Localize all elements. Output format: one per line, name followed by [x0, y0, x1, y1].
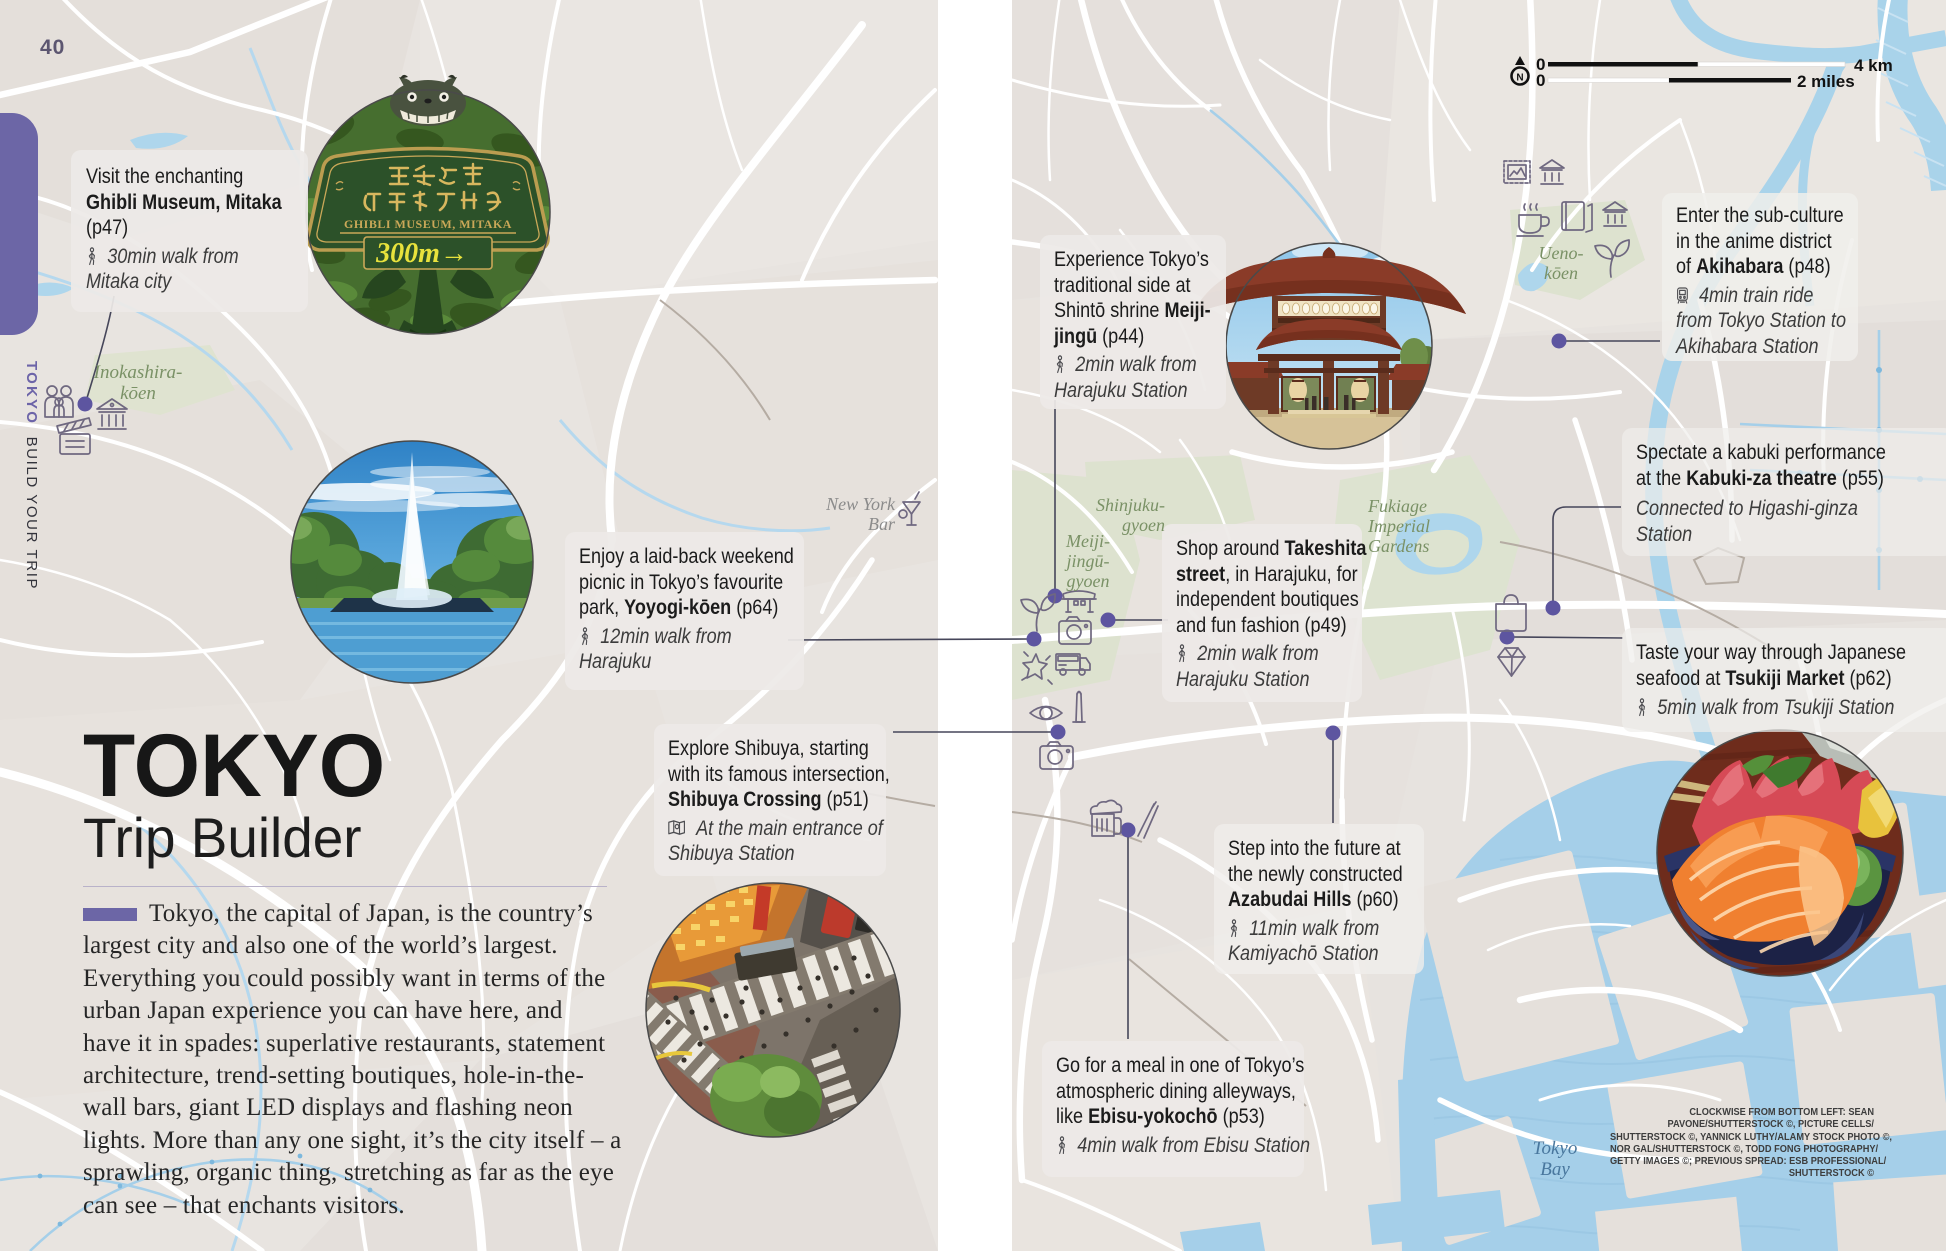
svg-text:300m→: 300m→	[375, 238, 468, 269]
svg-text:N: N	[1516, 73, 1523, 84]
svg-text:0: 0	[1536, 71, 1545, 90]
svg-text:2 miles: 2 miles	[1797, 72, 1855, 91]
svg-text:GHIBLI MUSEUM, MITAKA: GHIBLI MUSEUM, MITAKA	[344, 217, 512, 231]
svg-text:4 km: 4 km	[1854, 56, 1893, 75]
